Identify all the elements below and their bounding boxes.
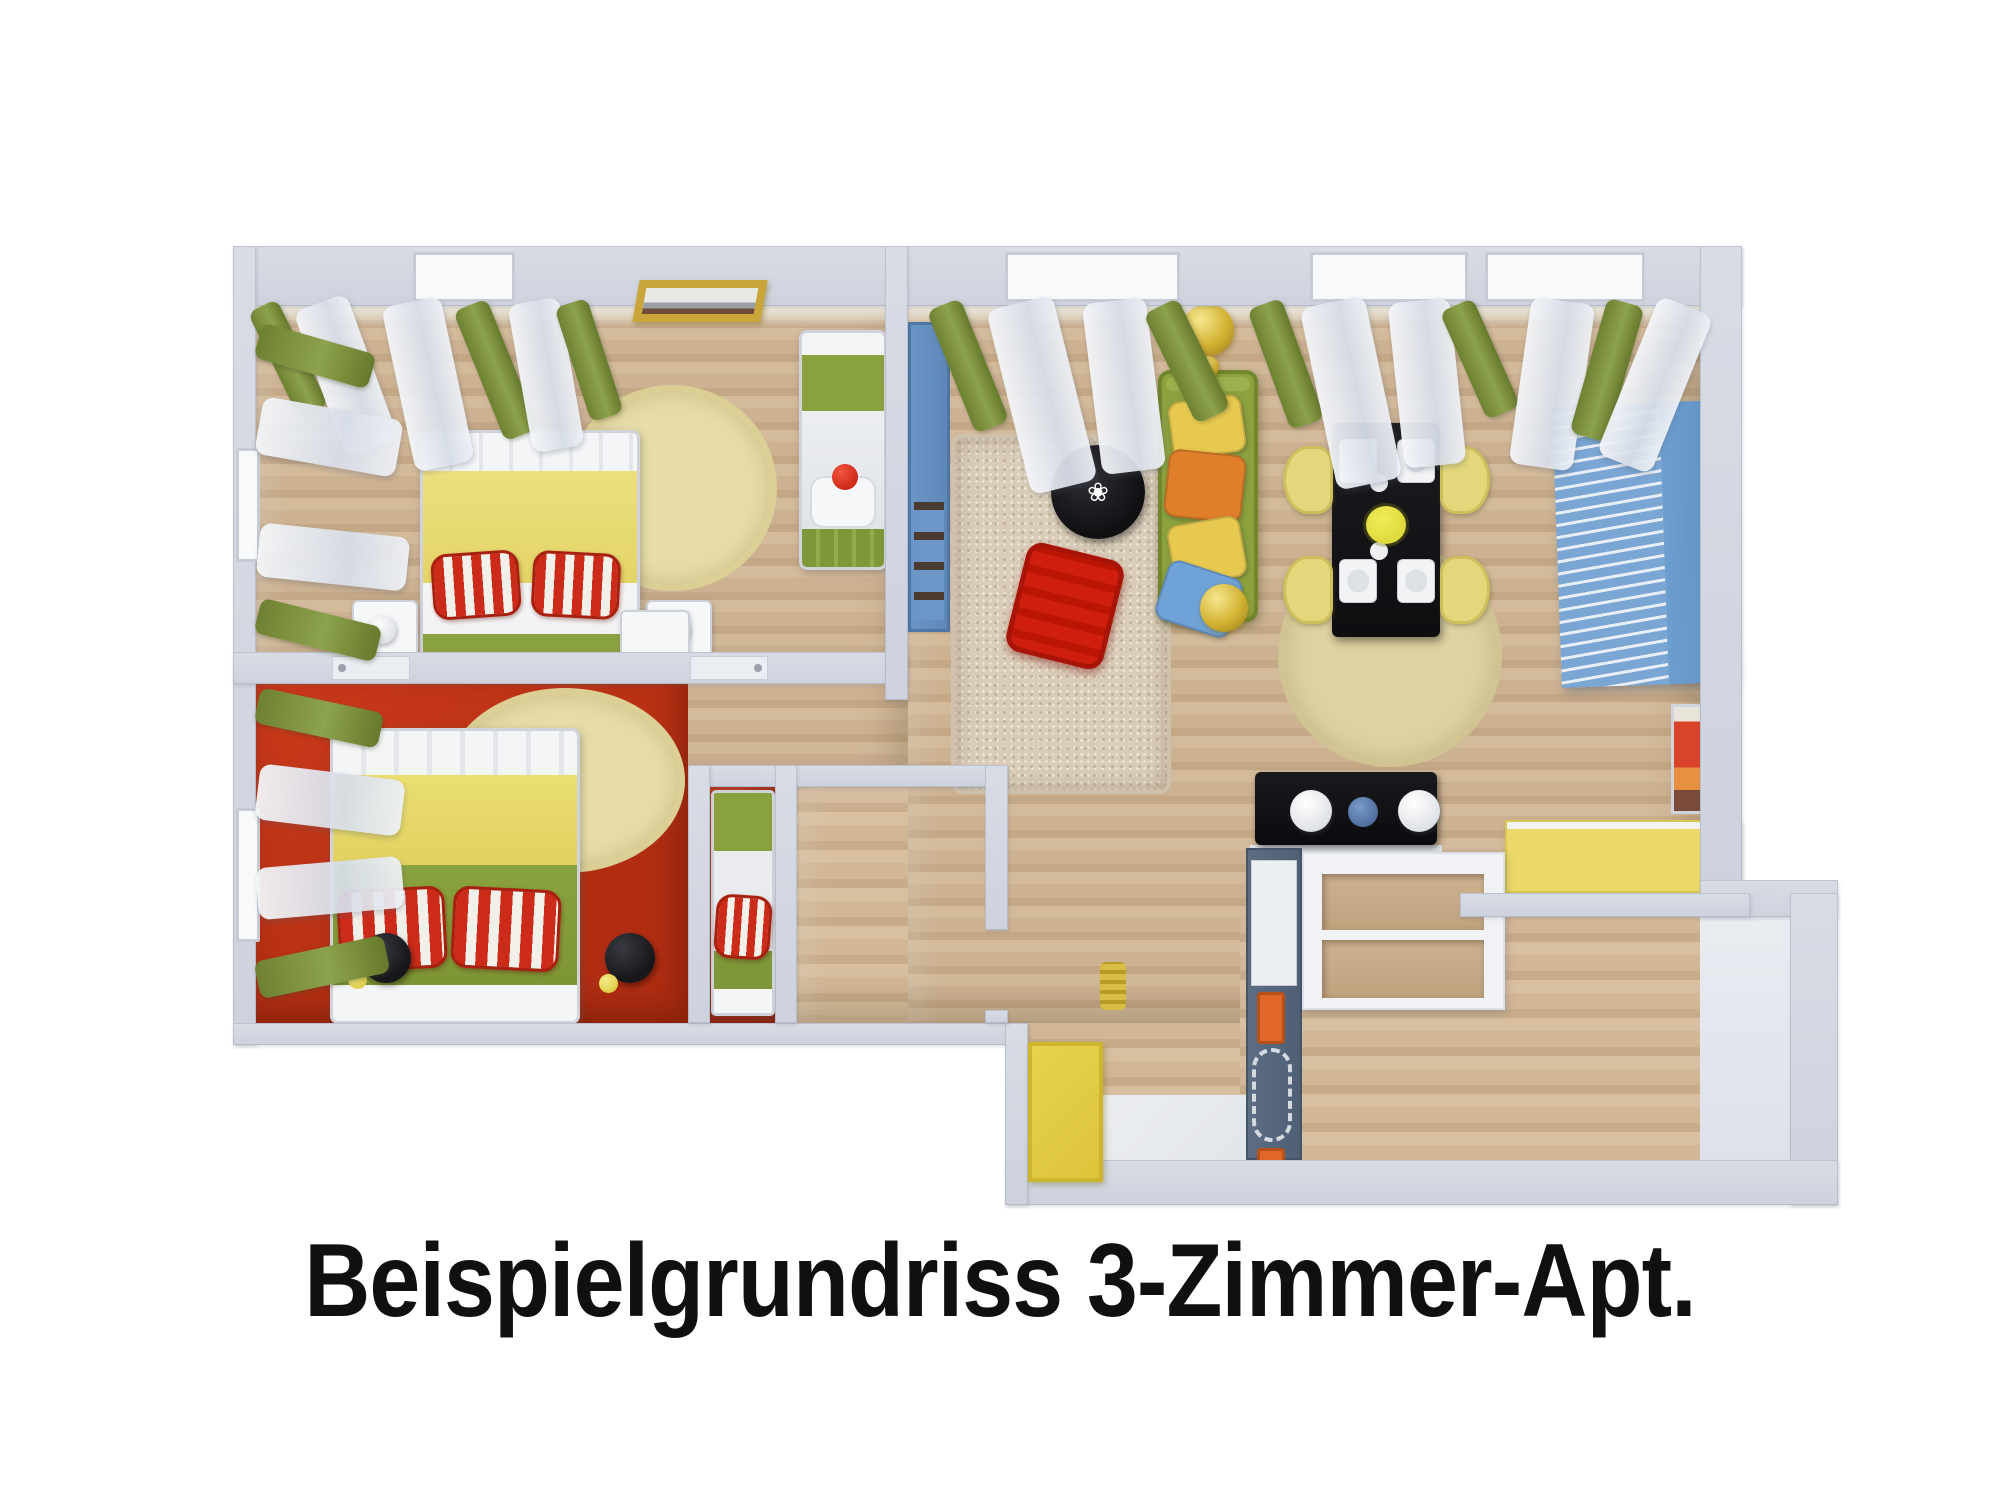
red-toy xyxy=(832,464,858,490)
bed-base xyxy=(714,989,772,1013)
dining-chair xyxy=(1283,446,1333,514)
right-wall-inner-face xyxy=(1700,917,1790,1160)
kitchen-shelf-counter xyxy=(1302,852,1505,1010)
table-bowl xyxy=(1370,542,1388,560)
wall-right-lower xyxy=(1790,893,1838,1205)
wall-bath-right-a xyxy=(985,765,1008,930)
orange-handle xyxy=(1257,992,1285,1044)
kitchen-cabinet-column xyxy=(1246,848,1302,1160)
wall-bath-left xyxy=(775,765,797,1023)
cooktop-burner xyxy=(1398,790,1440,832)
window-living-1 xyxy=(1005,252,1180,302)
striped-pillow xyxy=(450,885,562,973)
window-bedroom1-left xyxy=(236,448,260,562)
bed-foot-shelf xyxy=(802,529,884,567)
wall-nook-left xyxy=(688,765,710,1023)
window-living-3 xyxy=(1485,252,1645,302)
bed-footboard xyxy=(333,985,577,1021)
door-handle xyxy=(754,664,762,672)
place-setting xyxy=(1340,560,1376,602)
sofa-cushion-orange xyxy=(1163,448,1248,524)
wall-kitchen-room xyxy=(1460,893,1750,917)
open-cubby xyxy=(1322,940,1484,998)
blue-shelf-unit xyxy=(908,322,950,632)
dining-chair xyxy=(1283,556,1333,624)
bed-headboard-green xyxy=(802,355,884,411)
wall-entry-west xyxy=(1005,1023,1028,1205)
cabinet-white-panel xyxy=(1251,860,1297,986)
gold-coat-hook xyxy=(1100,962,1126,1010)
sink-outline xyxy=(1252,1048,1292,1142)
wall-right-upper xyxy=(1700,246,1742,893)
striped-pillow xyxy=(530,550,621,621)
bed-canopy xyxy=(802,333,884,355)
bed-headboard-green xyxy=(714,793,772,851)
wall-bath-right-b xyxy=(985,1010,1008,1023)
wall-living-divider xyxy=(885,246,908,700)
wall-bottom-right xyxy=(1005,1160,1838,1205)
striped-pillow xyxy=(430,549,522,621)
striped-pillow xyxy=(713,893,773,961)
single-bed-bedroom1 xyxy=(799,330,887,570)
front-door xyxy=(1028,1042,1103,1182)
door-handle xyxy=(338,664,346,672)
caption-text: Beispielgrundriss 3-Zimmer-Apt. xyxy=(120,1222,1880,1341)
place-setting xyxy=(1398,560,1434,602)
floorplan-image: ❀ xyxy=(0,0,2000,1500)
wall-nook-top xyxy=(688,765,1008,787)
wall-bottom-left xyxy=(233,1023,1028,1045)
double-bed-bedroom1 xyxy=(420,430,640,665)
cooktop-burner xyxy=(1290,790,1332,832)
window-bedroom1-top xyxy=(413,252,515,302)
window-living-2 xyxy=(1310,252,1468,302)
floor-lamp xyxy=(1200,584,1248,632)
shelf-lines xyxy=(914,502,944,620)
centerpiece-yellow xyxy=(1366,506,1406,544)
yellow-ball xyxy=(599,974,618,993)
blue-jar xyxy=(1348,797,1378,827)
door-bedroom1 xyxy=(690,656,768,680)
picture-frame-gold xyxy=(632,280,767,322)
dining-chair xyxy=(1440,556,1490,624)
caption-row: Beispielgrundriss 3-Zimmer-Apt. xyxy=(0,1222,2000,1341)
